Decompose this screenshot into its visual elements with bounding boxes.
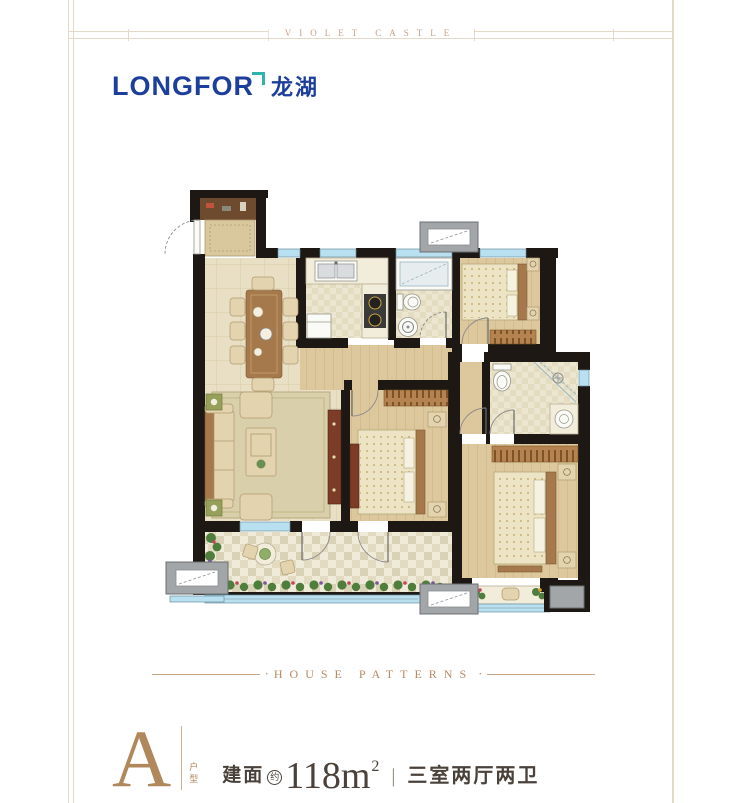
area-superscript: 2 [371,758,379,776]
ribbon-dot: · [478,666,482,682]
entry-door [165,220,200,254]
tv-cabinet [328,410,341,504]
headboard [416,430,425,514]
bed [462,264,527,320]
longfor-logo: LONGFOR 龙湖 [112,70,319,102]
unit-type-label: 户型 [187,762,200,786]
area-separator: | [391,765,395,788]
brochure-page: VIOLET CASTLE LONGFOR 龙湖 [0,0,750,803]
bathroom-sink [550,404,578,434]
ac-unit-right [544,580,590,612]
unit-type-letter: A [112,725,171,792]
living-room [205,392,341,520]
window [480,249,526,257]
frame-line-left-outer [68,0,69,803]
unit-info: A 户型 建面 约 118m 2 | 三室两厅两卫 [112,716,539,792]
nightstand [428,412,446,427]
area-value: 118m [285,760,370,792]
rooms-label: 三室两厅两卫 [407,759,539,788]
balcony-glass-door [240,522,290,531]
toilet-icon [397,294,421,310]
nightstand [428,502,446,517]
coffee-table [246,428,276,476]
nightstand [527,307,539,320]
toilet-icon [493,364,511,391]
ac-unit-left [166,562,228,602]
logo-corner-icon [252,72,265,85]
fridge [307,314,331,338]
bed [494,472,556,572]
window [320,249,356,257]
armchair [240,392,272,418]
nightstand [558,464,576,480]
nightstand [558,552,576,568]
window [278,249,300,257]
sofa [205,404,234,508]
project-name-ribbon: VIOLET CASTLE [269,28,474,38]
logo-wordmark: LONGFOR [112,71,254,102]
ac-unit-bottom [420,584,478,614]
floor-plan [150,188,612,624]
ac-unit-top [420,222,478,252]
area-label: 建面 [222,760,264,787]
tv-cabinet [350,444,359,508]
window [579,370,589,386]
washing-machine [399,318,418,337]
headboard [518,264,527,320]
headboard [546,472,556,564]
unit-area: 建面 约 118m 2 | 三室两厅两卫 [222,758,539,792]
unit-divider [181,726,182,790]
door-leaf [194,220,200,254]
nightstand [527,258,539,271]
ribbon-dot: · [265,666,269,682]
footer-ribbon: · HOUSE PATTERNS · [152,666,595,682]
frame-line-right [672,0,674,803]
frame-line-left-inner [73,0,74,803]
area-approx-icon: 约 [267,770,282,785]
entry-foyer [200,198,256,256]
footer-ribbon-text: HOUSE PATTERNS [274,667,473,682]
cushion [502,588,519,600]
top-ribbon: VIOLET CASTLE [68,31,674,39]
armchair [240,494,272,520]
logo-chinese: 龙湖 [271,70,319,102]
bed [358,430,425,514]
